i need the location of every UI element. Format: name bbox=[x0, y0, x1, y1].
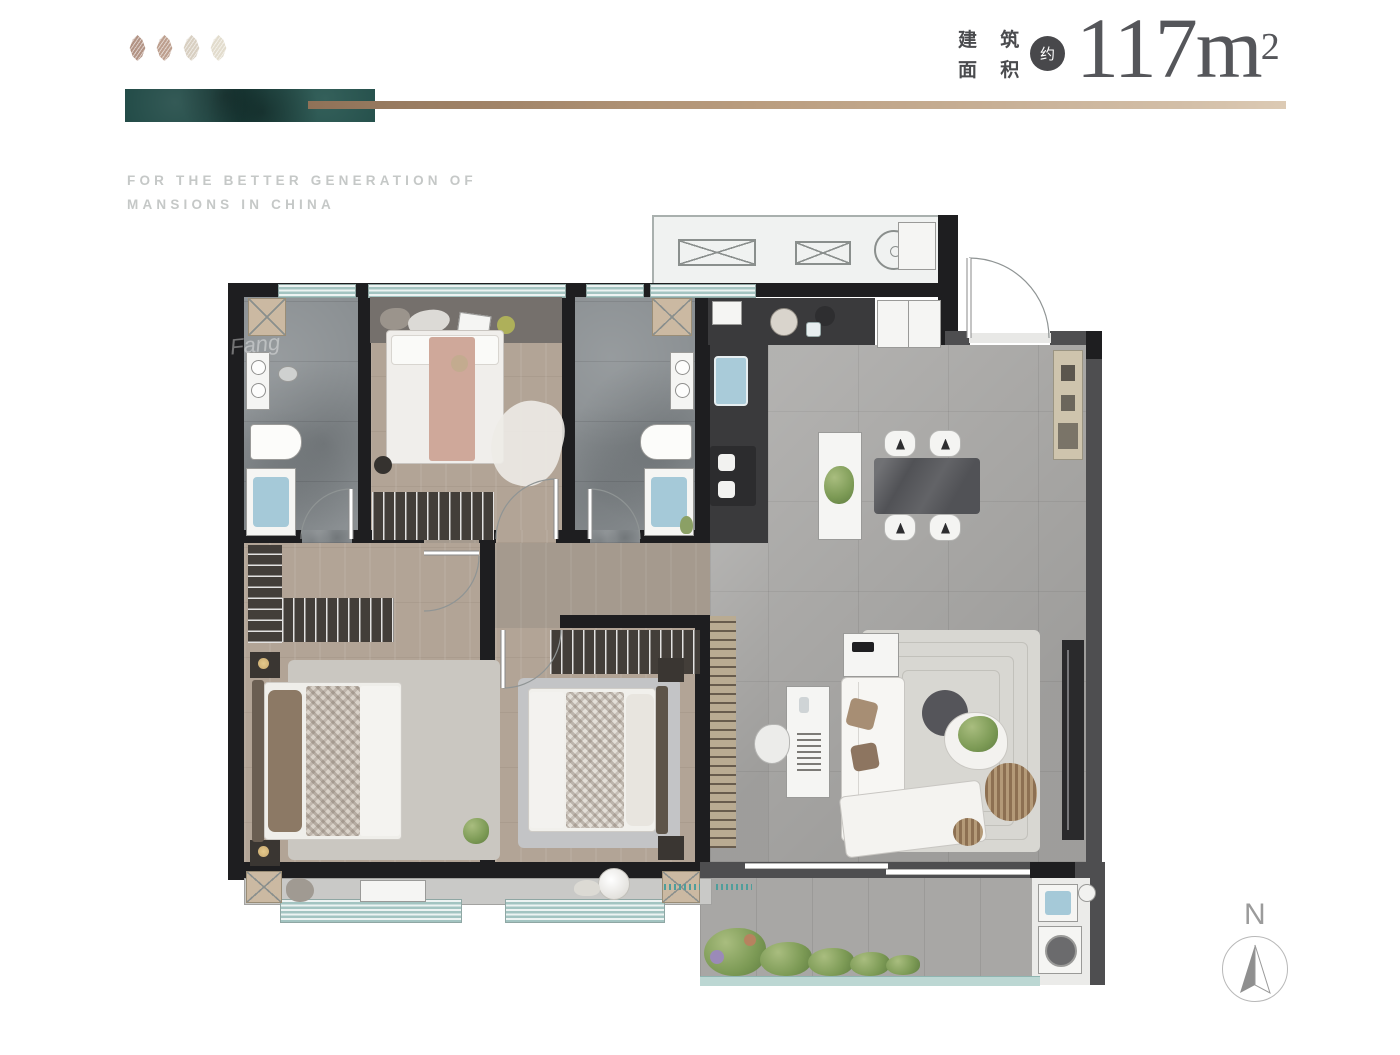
compass-north-label: N bbox=[1244, 898, 1266, 932]
bedroom3-door-arc bbox=[496, 479, 556, 539]
compass-arrow-light-half bbox=[1255, 945, 1270, 993]
floorplan-page: FOR THE BETTER GENERATION OF MANSIONS IN… bbox=[0, 0, 1400, 1055]
bath2-door-arc bbox=[590, 489, 640, 539]
compass-arrow-dark-half bbox=[1240, 945, 1255, 993]
compass bbox=[1222, 936, 1288, 1002]
watermark: Fang bbox=[229, 329, 282, 360]
compass-arrow-icon bbox=[1223, 937, 1287, 1001]
bedroom2-door-arc bbox=[503, 630, 561, 688]
door-arcs-overlay bbox=[0, 0, 1400, 1055]
bath1-door-arc bbox=[301, 489, 351, 539]
entry-door-arc bbox=[969, 258, 1049, 338]
bedroom1-door-arc bbox=[424, 556, 479, 611]
